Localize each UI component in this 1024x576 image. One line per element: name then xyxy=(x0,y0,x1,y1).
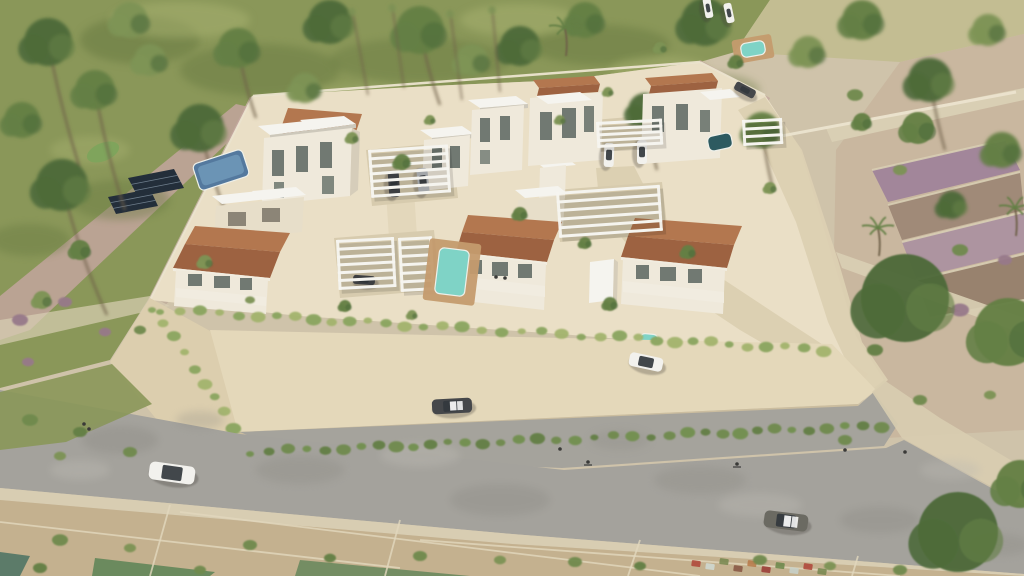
hanging-plant xyxy=(218,407,231,416)
hedge-bush xyxy=(459,438,471,446)
hedge-bush xyxy=(680,427,695,438)
tree-canopy xyxy=(23,114,43,134)
hanging-plant xyxy=(495,328,508,338)
window xyxy=(492,262,508,276)
pool-water xyxy=(434,247,469,296)
tree-canopy xyxy=(421,22,447,48)
tree-canopy xyxy=(472,55,490,73)
hedge-bush xyxy=(803,427,815,435)
hanging-plant xyxy=(477,327,487,334)
tree-canopy xyxy=(727,60,736,69)
shrub xyxy=(52,534,68,546)
tree-canopy xyxy=(345,304,352,311)
car-roof-panel xyxy=(783,515,791,527)
tree-canopy xyxy=(554,118,560,124)
car-cabin xyxy=(161,465,183,482)
hedge-bush xyxy=(752,427,763,435)
tree-canopy xyxy=(521,39,543,61)
shrub xyxy=(413,551,427,561)
tree-canopy xyxy=(679,250,688,259)
hedge-bush xyxy=(590,434,598,440)
asphalt-patch xyxy=(176,411,224,429)
pedestrian xyxy=(82,422,86,426)
pool-center-villa xyxy=(422,238,481,306)
tree-canopy xyxy=(918,123,936,141)
window xyxy=(676,104,688,130)
tree-canopy xyxy=(688,250,696,258)
hanging-plant xyxy=(612,330,627,341)
hedge-bush xyxy=(857,421,870,430)
stair-structure-front xyxy=(589,259,618,303)
hedge-bush xyxy=(475,439,489,449)
tree-canopy xyxy=(68,247,80,259)
tree-canopy xyxy=(150,55,168,73)
car-roof-panel xyxy=(450,401,457,410)
hanging-plant xyxy=(380,319,392,327)
hanging-plant xyxy=(343,316,357,326)
window xyxy=(320,142,332,168)
asphalt-patch xyxy=(590,430,650,450)
window xyxy=(518,264,532,278)
tree-canopy xyxy=(608,90,614,96)
hanging-plant xyxy=(189,365,201,374)
shrub xyxy=(867,344,883,356)
hedge-bush xyxy=(530,433,545,444)
hanging-plant xyxy=(180,349,189,355)
shrub xyxy=(634,562,646,571)
window xyxy=(240,278,252,290)
shrub xyxy=(324,554,336,563)
shrub xyxy=(952,244,968,256)
shrub xyxy=(22,414,38,426)
shrub xyxy=(33,563,47,573)
tree-canopy xyxy=(966,321,1008,363)
tree-canopy xyxy=(898,123,918,143)
hanging-plant xyxy=(798,343,811,352)
figure xyxy=(843,448,847,452)
hanging-plant xyxy=(364,318,373,324)
shrub xyxy=(913,395,927,405)
window xyxy=(540,112,552,140)
tree-canopy xyxy=(30,177,62,209)
tree-canopy xyxy=(520,212,528,220)
hanging-plant xyxy=(816,346,832,357)
market-clutter xyxy=(817,568,827,575)
hedge-bush xyxy=(874,422,890,433)
tree-canopy xyxy=(610,302,618,310)
tree-canopy xyxy=(49,34,75,60)
window xyxy=(688,269,702,283)
hedge-bush xyxy=(496,439,505,446)
tree-canopy xyxy=(196,260,205,269)
tree-canopy xyxy=(70,84,95,109)
hanging-plant xyxy=(158,319,169,327)
shrub xyxy=(893,165,907,175)
asphalt-patch xyxy=(82,426,158,454)
asphalt-patch xyxy=(450,484,550,516)
tree-canopy xyxy=(903,73,930,100)
hanging-plant xyxy=(577,334,586,341)
cypress-top xyxy=(388,4,396,12)
window xyxy=(660,267,676,281)
shrub xyxy=(824,562,836,571)
shrub xyxy=(99,328,111,337)
hanging-plant xyxy=(148,307,156,313)
hanging-plant xyxy=(289,312,302,321)
hanging-plant xyxy=(215,309,224,315)
tree-canopy xyxy=(412,313,418,319)
hedge-bush xyxy=(246,451,254,457)
tree-canopy xyxy=(837,14,862,39)
tree-canopy xyxy=(80,247,91,258)
hedge-bush xyxy=(647,434,656,441)
hanging-plant xyxy=(198,379,213,390)
hanging-plant xyxy=(704,336,718,346)
pergola xyxy=(336,237,400,294)
hanging-plant xyxy=(175,308,186,316)
hanging-plant xyxy=(193,305,207,315)
hanging-plant xyxy=(156,309,164,315)
tree-canopy xyxy=(763,186,770,193)
tree-canopy xyxy=(935,201,952,218)
window xyxy=(584,106,594,132)
tree-canopy xyxy=(338,304,345,311)
market-clutter xyxy=(775,562,785,569)
tree-canopy xyxy=(990,476,1020,506)
tree-canopy xyxy=(452,55,472,75)
hanging-plant xyxy=(419,324,428,331)
window xyxy=(296,146,308,172)
hedge-bush xyxy=(840,422,850,429)
shrub xyxy=(243,540,257,550)
hanging-plant xyxy=(167,331,181,341)
market-clutter xyxy=(719,558,729,565)
hedge-bush xyxy=(768,424,782,434)
hanging-plant xyxy=(688,337,699,345)
tree-canopy xyxy=(495,40,520,65)
tree-canopy xyxy=(131,14,151,34)
tree-canopy xyxy=(585,241,592,248)
figure xyxy=(735,462,739,466)
tree-canopy xyxy=(586,14,606,34)
tree-canopy xyxy=(675,14,705,44)
shrub xyxy=(123,447,137,457)
window xyxy=(500,116,510,140)
tree-canopy xyxy=(968,25,988,45)
tree-canopy xyxy=(286,83,305,102)
market-clutter xyxy=(705,563,715,570)
window xyxy=(322,176,334,194)
shrub xyxy=(22,358,34,367)
tree-canopy xyxy=(980,144,1002,166)
tree-canopy xyxy=(808,47,826,65)
hedge-bush xyxy=(625,431,639,441)
pedestrian xyxy=(87,427,91,431)
tree-canopy xyxy=(660,46,667,53)
hedge-bush xyxy=(264,448,275,456)
tree-canopy xyxy=(0,114,22,136)
tree-canopy xyxy=(63,176,92,205)
tree-canopy xyxy=(345,136,352,143)
tree-canopy xyxy=(331,15,355,39)
pedestrian xyxy=(903,450,907,454)
hanging-plant xyxy=(633,334,643,341)
window xyxy=(188,274,202,286)
hanging-plant xyxy=(742,343,754,351)
tree-canopy xyxy=(406,313,412,319)
tree-canopy xyxy=(392,159,402,169)
hanging-plant xyxy=(436,321,448,330)
hedge-bush xyxy=(281,444,295,454)
figure xyxy=(558,447,562,451)
hanging-plant xyxy=(454,321,469,332)
tree-canopy xyxy=(851,119,862,130)
tree-canopy xyxy=(42,297,52,307)
figure xyxy=(494,275,498,279)
shrub xyxy=(998,255,1012,265)
asphalt-patch xyxy=(50,460,110,480)
shrub xyxy=(893,565,907,575)
tree-canopy xyxy=(736,60,744,68)
hedge-bush xyxy=(302,446,311,452)
hanging-plant xyxy=(397,321,411,331)
hedge-bush xyxy=(819,423,834,434)
figure xyxy=(503,276,507,280)
window xyxy=(480,118,490,142)
window xyxy=(272,150,284,176)
hanging-plant xyxy=(667,337,683,348)
tree-canopy xyxy=(850,284,905,339)
tree-canopy xyxy=(130,55,150,75)
tree-canopy xyxy=(96,83,118,105)
pergola xyxy=(556,185,666,242)
tree-canopy xyxy=(1003,144,1023,164)
shrub xyxy=(73,427,87,437)
shrub xyxy=(58,297,72,307)
tree-canopy xyxy=(430,118,436,124)
hedge-bush xyxy=(513,435,525,444)
tree-canopy xyxy=(862,119,872,129)
car-roof-panel xyxy=(457,401,463,410)
garage-door xyxy=(262,208,280,222)
tree-canopy xyxy=(770,186,777,193)
hedge-bush xyxy=(336,444,351,455)
hanging-plant xyxy=(251,312,266,323)
tree-canopy xyxy=(352,136,359,143)
hanging-plant xyxy=(759,342,774,353)
hedge-bush xyxy=(388,441,404,452)
tree-canopy xyxy=(303,15,330,42)
tree-canopy xyxy=(952,200,967,215)
tree-canopy xyxy=(788,47,808,67)
shrub xyxy=(54,452,66,461)
market-clutter xyxy=(733,565,743,572)
tree-canopy xyxy=(988,25,1006,43)
hanging-plant xyxy=(595,333,607,342)
render-canvas xyxy=(0,0,1024,576)
tree-canopy xyxy=(653,46,660,53)
asphalt-patch xyxy=(256,456,344,484)
market-clutter xyxy=(803,563,813,570)
window xyxy=(480,150,490,164)
hanging-plant xyxy=(272,312,282,319)
hanging-plant xyxy=(518,328,526,334)
asphalt-patch xyxy=(840,507,920,533)
tree-canopy xyxy=(906,283,954,331)
figure xyxy=(87,427,91,431)
tree-canopy xyxy=(931,73,955,97)
tree-canopy xyxy=(959,519,1003,563)
tree-canopy xyxy=(602,90,608,96)
hedge-bush xyxy=(443,439,452,445)
hanging-plant xyxy=(210,393,220,400)
shrub xyxy=(124,544,136,553)
tree-canopy xyxy=(201,120,227,146)
hedge-bush xyxy=(664,431,676,440)
hedge-bush xyxy=(787,427,796,433)
tree-canopy xyxy=(213,42,238,67)
tree-canopy xyxy=(31,297,42,308)
hanging-plant xyxy=(326,318,337,326)
hanging-plant xyxy=(650,336,663,345)
hedge-bush xyxy=(569,436,582,446)
hanging-plant xyxy=(780,342,790,349)
cypress-top xyxy=(446,10,454,18)
hedge-bush xyxy=(357,443,367,450)
hedge-bush xyxy=(373,440,386,449)
shrub xyxy=(12,314,28,326)
hedge-bush xyxy=(551,437,561,444)
tree-canopy xyxy=(18,34,48,64)
market-clutter xyxy=(691,560,701,567)
shrub xyxy=(847,89,863,101)
tree-canopy xyxy=(402,159,411,168)
hanging-plant xyxy=(233,312,245,321)
tree-canopy xyxy=(170,120,200,150)
window xyxy=(636,265,649,279)
market-clutter xyxy=(789,567,799,574)
tree-canopy xyxy=(601,302,610,311)
figure xyxy=(82,422,86,426)
tree-canopy xyxy=(863,13,885,35)
hanging-plant xyxy=(306,314,322,325)
hedge-bush xyxy=(717,429,730,438)
tree-canopy xyxy=(511,212,520,221)
hedge-bush xyxy=(608,431,619,439)
tree-canopy xyxy=(424,118,430,124)
shrub xyxy=(194,566,206,575)
tree-canopy xyxy=(305,83,322,100)
hanging-plant xyxy=(536,327,547,335)
hedge-bush xyxy=(408,443,419,451)
pedestrian xyxy=(558,447,562,451)
tree-canopy xyxy=(908,519,958,569)
hedge-bush xyxy=(701,429,711,436)
tree-canopy xyxy=(560,118,566,124)
shrub xyxy=(568,557,582,567)
window xyxy=(700,110,710,132)
shrub xyxy=(984,391,996,400)
shrub xyxy=(245,296,255,303)
tree-canopy xyxy=(205,260,213,268)
hedge-bush xyxy=(732,428,748,439)
shrub xyxy=(753,555,767,565)
asphalt-patch xyxy=(654,466,746,494)
hedge-bush xyxy=(319,446,331,455)
tree-canopy xyxy=(108,14,130,36)
wall xyxy=(470,105,524,175)
figure xyxy=(586,460,590,464)
figure xyxy=(903,450,907,454)
pedestrian xyxy=(494,275,498,279)
hanging-plant xyxy=(725,341,734,347)
window xyxy=(214,276,230,288)
asphalt-patch xyxy=(920,460,980,480)
cypress-top xyxy=(348,8,356,16)
market-clutter xyxy=(761,566,771,573)
aerial-architectural-render xyxy=(0,0,1024,576)
hanging-plant xyxy=(555,329,569,339)
pedestrian xyxy=(843,448,847,452)
cypress-top xyxy=(488,6,496,14)
hedge-bush xyxy=(424,440,438,450)
garage-door xyxy=(228,212,246,226)
tree-canopy xyxy=(239,41,261,63)
shrub xyxy=(494,556,506,565)
shrub xyxy=(838,435,852,445)
tree-canopy xyxy=(578,241,585,248)
shrub xyxy=(134,326,146,335)
wall xyxy=(589,259,614,303)
pedestrian xyxy=(503,276,507,280)
